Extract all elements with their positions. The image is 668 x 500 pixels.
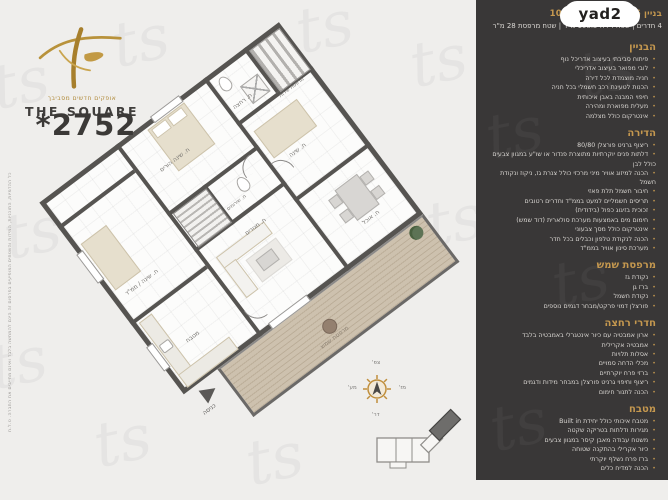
spec-item: פורצלן דמוי פרקט/מבחר דגמים נוספים bbox=[484, 302, 656, 311]
brand-watermark-icon: ts bbox=[239, 417, 310, 500]
compass-north-label: צפ' bbox=[372, 360, 380, 366]
spec-item: מטבח איכותי כולל יחידת Built in bbox=[484, 417, 656, 426]
spec-item: הכנה למדיח כלים bbox=[484, 464, 656, 473]
spec-item: כיור אקרילי בהתקנה שטוחה bbox=[484, 445, 656, 454]
spec-item: חניה מוצמדת לכל דירה bbox=[484, 74, 656, 83]
phone-number: *2752 bbox=[26, 108, 146, 142]
spec-item: נקודת גז bbox=[484, 273, 656, 282]
brand-monogram-icon bbox=[32, 24, 132, 90]
spec-section: חדרי רחצהארון אמבטיה עם כיור אינטגרלי בא… bbox=[484, 318, 656, 397]
compass-east-label: מז' bbox=[399, 385, 406, 391]
compass-west-label: מע' bbox=[348, 385, 357, 391]
flyer-canvas: tstststststststststs { "brand": { "tagli… bbox=[0, 0, 668, 480]
spec-item: ריצוף וחיפוי גרניט פורצלן במבחר מידות וד… bbox=[484, 378, 656, 387]
legal-disclaimer: כל ההדמיות, התוכניות, המידות והשטחים המו… bbox=[8, 172, 13, 432]
spec-section: הבנייןפיתוח סביבתי בעיצוב אדריכל נוףלובי… bbox=[484, 42, 656, 121]
building-key-plan bbox=[372, 400, 468, 474]
spec-item: מגירות ודלתות בטריקה שקטה bbox=[484, 426, 656, 435]
spec-item: אמבטיה אקרילית bbox=[484, 341, 656, 350]
spec-item: חימום מים באמצעות מערכת סולארית (דוד שמש… bbox=[484, 216, 656, 225]
spec-item: ארון אמבטיה עם כיור אינטגרלי באמבטיה בלב… bbox=[484, 331, 656, 340]
spec-item: אינטרקום כולל מצלמה bbox=[484, 112, 656, 121]
yad2-logo-text: yad2 bbox=[578, 5, 621, 23]
spec-item: תריסים חשמליים למעט בממ"ד וחדרים רטובים bbox=[484, 197, 656, 206]
spec-item: ברז פרח נשלף יוקרתי bbox=[484, 455, 656, 464]
spec-item: הכנה למיזוג אוויר מיני מרכזי כולל צנרת ג… bbox=[484, 169, 656, 188]
spec-item-list: מטבח איכותי כולל יחידת Built inמגירות וד… bbox=[484, 417, 656, 474]
brand-tagline: אופקים חדשים מסביבך bbox=[20, 95, 144, 102]
spec-item: זכוכית בזיגוג כפול (בידודית) bbox=[484, 206, 656, 215]
spec-section-title: מרפסת שמש bbox=[484, 260, 656, 271]
spec-item: ברז גן bbox=[484, 283, 656, 292]
spec-section: מטבחמטבח איכותי כולל יחידת Built inמגירו… bbox=[484, 404, 656, 474]
spec-item-list: נקודת גזברז גןנקודת חשמלפורצלן דמוי פרקט… bbox=[484, 273, 656, 311]
spec-item: הכנות לטעינת רכב חשמלי בכל חניה bbox=[484, 83, 656, 92]
spec-item: משטח עבודה מאבן קיסר במגוון צבעים bbox=[484, 436, 656, 445]
spec-item: אסלות תלויות bbox=[484, 350, 656, 359]
entrance-arrow-icon bbox=[199, 382, 221, 404]
spec-item: אינטרקום כולל מסך צבעוני bbox=[484, 225, 656, 234]
spec-item: מכלי הדחה סמויים bbox=[484, 359, 656, 368]
spec-section-title: הדירה bbox=[484, 128, 656, 139]
spec-section: מרפסת שמשנקודת גזברז גןנקודת חשמלפורצלן … bbox=[484, 260, 656, 311]
spec-item-list: ארון אמבטיה עם כיור אינטגרלי באמבטיה בלב… bbox=[484, 331, 656, 397]
spec-item: ריצוף גרניט פורצלן 80/80 bbox=[484, 141, 656, 150]
spec-item: ברזי פרח יוקרתיים bbox=[484, 369, 656, 378]
spec-item: הכנה לנקודת טלפון וכבלים בכל חדר bbox=[484, 235, 656, 244]
spec-item: הכנה לתנור חימום bbox=[484, 388, 656, 397]
spec-item: דלתות פנים יוקרתיות מתוצרת פנדור או שו"ע… bbox=[484, 150, 656, 169]
brand-watermark-icon: ts bbox=[403, 19, 474, 102]
entrance-label: כניסה bbox=[201, 402, 217, 416]
yad2-logo: yad2 bbox=[564, 1, 636, 27]
spec-section-title: הבניין bbox=[484, 42, 656, 53]
brand-block: אופקים חדשים מסביבך THE SQUARE bbox=[20, 24, 144, 119]
spec-item: מעלית מפוארת ומהירה bbox=[484, 102, 656, 111]
spec-section-title: חדרי רחצה bbox=[484, 318, 656, 329]
spec-item: חיבור חשמל תלת פאזי bbox=[484, 187, 656, 196]
spec-section-title: מטבח bbox=[484, 404, 656, 415]
spec-item: מערכת סינון אוויר בממ"ד bbox=[484, 244, 656, 253]
brand-watermark-icon: ts bbox=[87, 399, 158, 482]
spec-item: חיפוי המבנה באבן איכותית bbox=[484, 93, 656, 102]
spec-item: לובי מפואר בעיצוב אדריכלי bbox=[484, 64, 656, 73]
spec-item: נקודת חשמל bbox=[484, 292, 656, 301]
spec-item-list: ריצוף גרניט פורצלן 80/80דלתות פנים יוקרת… bbox=[484, 141, 656, 253]
spec-item: פיתוח סביבתי בעיצוב אדריכל נוף bbox=[484, 55, 656, 64]
spec-item-list: פיתוח סביבתי בעיצוב אדריכל נוףלובי מפואר… bbox=[484, 55, 656, 121]
specs-list: הבנייןפיתוח סביבתי בעיצוב אדריכל נוףלובי… bbox=[484, 42, 656, 481]
spec-section: הדירהריצוף גרניט פורצלן 80/80דלתות פנים … bbox=[484, 128, 656, 253]
